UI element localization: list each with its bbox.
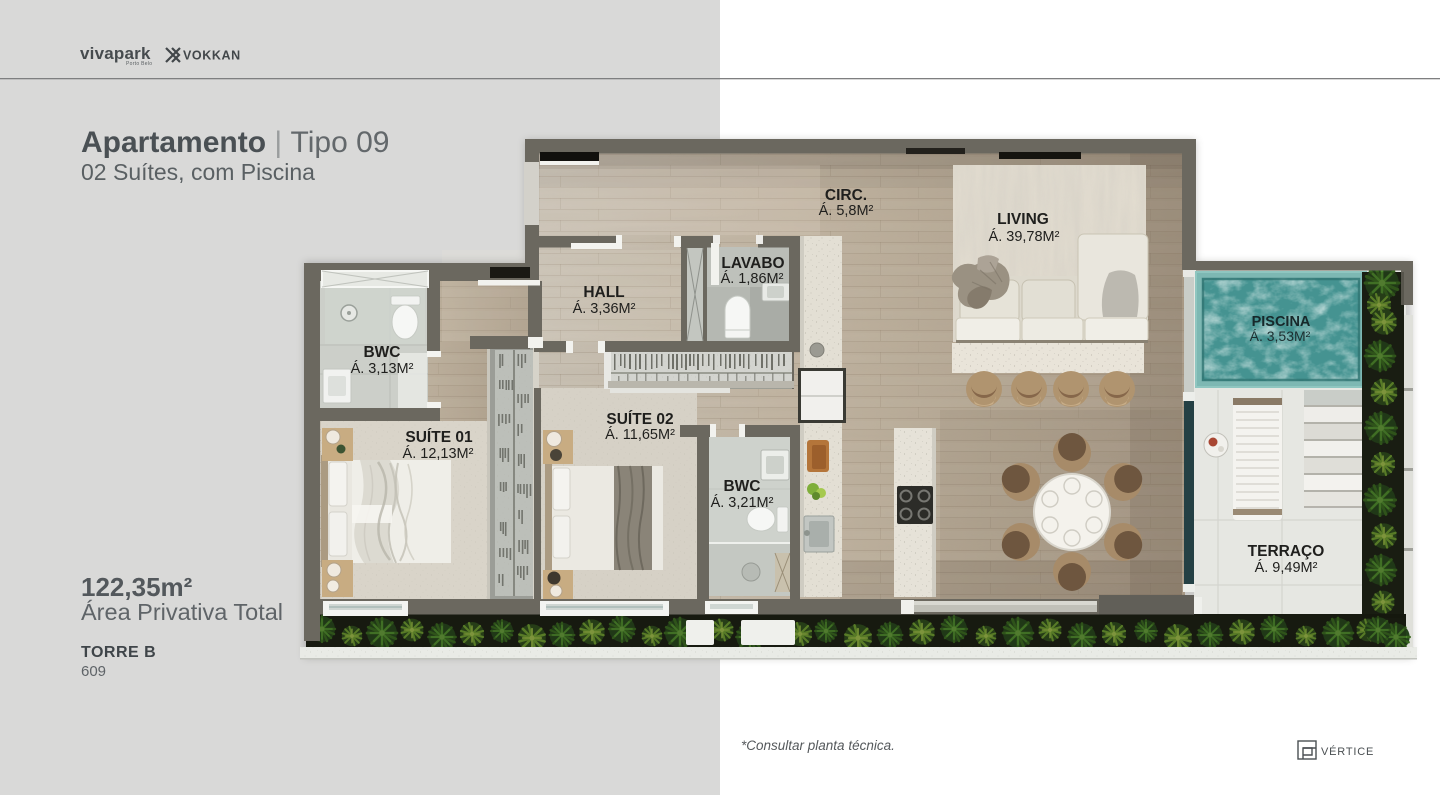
svg-text:TERRAÇO: TERRAÇO (1248, 543, 1325, 560)
svg-text:BWC: BWC (723, 478, 760, 495)
svg-text:Á. 3,53M²: Á. 3,53M² (1250, 328, 1311, 344)
svg-text:Á. 5,8M²: Á. 5,8M² (819, 202, 874, 219)
svg-text:Á. 3,21M²: Á. 3,21M² (711, 494, 774, 511)
svg-text:Á. 11,65M²: Á. 11,65M² (605, 426, 675, 443)
svg-text:Á. 12,13M²: Á. 12,13M² (403, 445, 474, 462)
svg-text:HALL: HALL (583, 284, 624, 301)
svg-text:SUÍTE 01: SUÍTE 01 (405, 429, 473, 446)
svg-text:Á. 3,36M²: Á. 3,36M² (573, 300, 636, 317)
svg-text:BWC: BWC (363, 344, 400, 361)
svg-text:VÉRTICE: VÉRTICE (1321, 745, 1374, 758)
svg-text:VOKKAN: VOKKAN (183, 49, 241, 63)
svg-text:Á. 9,49M²: Á. 9,49M² (1255, 559, 1318, 576)
svg-text:SUÍTE 02: SUÍTE 02 (606, 411, 673, 428)
svg-text:CIRC.: CIRC. (825, 187, 867, 204)
svg-text:LAVABO: LAVABO (721, 255, 784, 272)
svg-text:Á. 1,86M²: Á. 1,86M² (721, 270, 784, 287)
svg-text:Á. 3,13M²: Á. 3,13M² (351, 360, 414, 377)
svg-text:Á. 39,78M²: Á. 39,78M² (989, 228, 1060, 245)
svg-text:LIVING: LIVING (997, 211, 1049, 228)
